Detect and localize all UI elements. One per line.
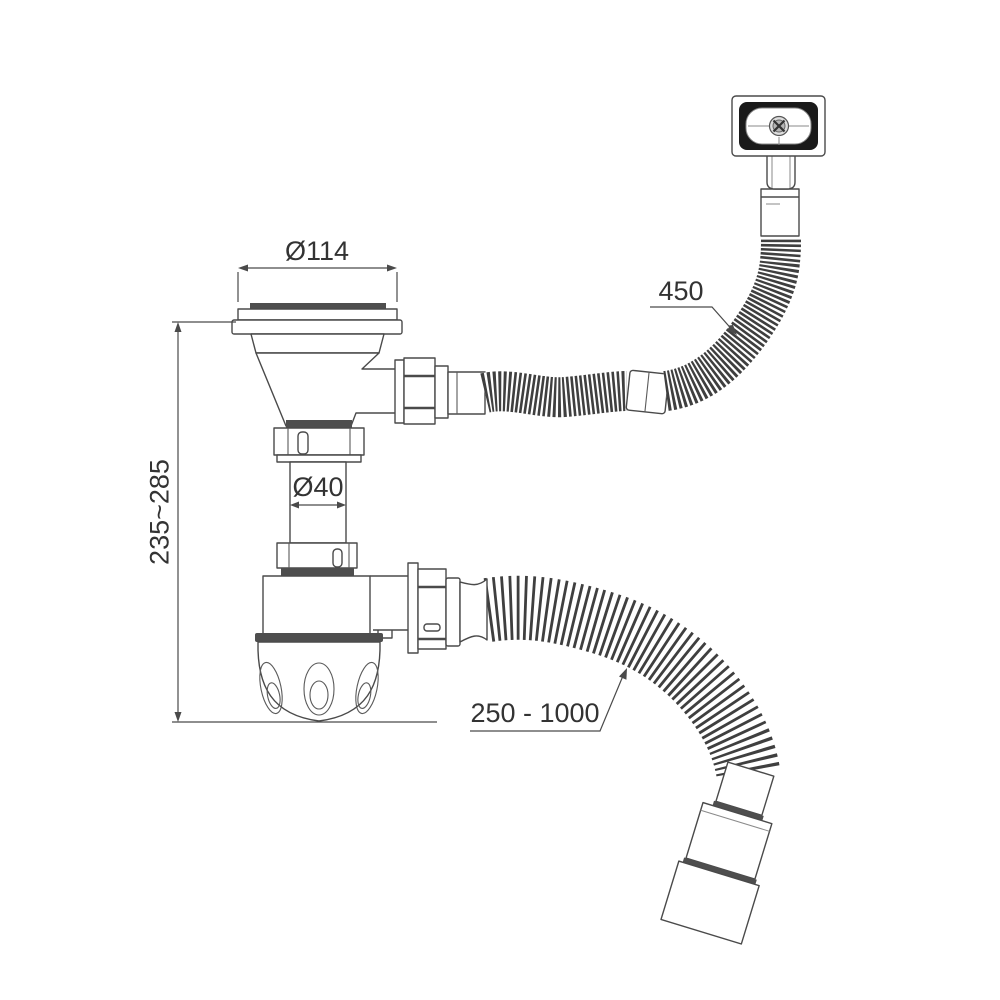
outlet-hose-length-label: 250 - 1000 <box>470 698 599 728</box>
dimension-114-label: Ø114 <box>285 236 349 266</box>
arrowhead <box>238 265 248 272</box>
overflow-outlet-connector <box>395 358 485 424</box>
overflow-hose <box>485 238 781 414</box>
overflow-nut-flange <box>395 360 404 423</box>
label-250-1000: 250 - 1000 <box>470 668 627 731</box>
leader-arrowhead <box>619 668 627 680</box>
siphon-gasket <box>281 568 354 576</box>
outlet-hose-base <box>488 608 748 771</box>
dimension-height-label: 235~285 <box>144 459 174 565</box>
overflow-head <box>732 96 825 236</box>
cone-flare <box>460 579 487 642</box>
label-450: 450 <box>650 276 737 335</box>
leader-line <box>650 307 735 333</box>
outlet-hose-cone <box>446 578 487 646</box>
cup-gasket-ring <box>255 633 383 642</box>
strainer-collar <box>251 334 384 353</box>
dimension-40-label: Ø40 <box>292 472 343 502</box>
funnel-gasket <box>286 420 352 428</box>
strainer-nut-flare <box>277 455 361 462</box>
overflow-connector-pipe <box>761 189 799 236</box>
overflow-neck <box>767 155 795 189</box>
hose-nut-body <box>418 569 446 649</box>
outlet-hose-end-fitting <box>661 757 791 944</box>
siphon-body <box>263 576 370 634</box>
arrowhead <box>387 265 397 272</box>
overflow-nut-body <box>404 358 435 424</box>
outlet-hose <box>488 608 748 771</box>
nut-pin <box>298 432 308 454</box>
strainer-assembly <box>232 303 402 462</box>
nut-pin <box>333 549 342 567</box>
overflow-hose-length-label: 450 <box>658 276 703 306</box>
dimension-114: Ø114 <box>238 236 397 302</box>
overflow-hose-sleeve <box>626 370 669 414</box>
arrowhead <box>175 712 182 722</box>
strainer-ring-upper <box>238 309 397 320</box>
strainer-gasket-plate <box>250 303 386 309</box>
siphon-technical-drawing: Ø114 Ø40 235~285 450 250 - 1000 <box>0 0 1000 1000</box>
arrowhead <box>175 322 182 332</box>
strainer-ring-lower <box>232 320 402 334</box>
overflow-collar <box>435 366 448 418</box>
hose-nut-flange <box>408 563 418 653</box>
overflow-stub-pipe <box>448 372 485 414</box>
drawing-canvas: Ø114 Ø40 235~285 450 250 - 1000 <box>0 0 1000 1000</box>
cone-collar <box>446 578 460 646</box>
strainer-funnel-body <box>256 353 397 426</box>
siphon-assembly <box>255 543 446 721</box>
nut-pin <box>424 624 440 631</box>
